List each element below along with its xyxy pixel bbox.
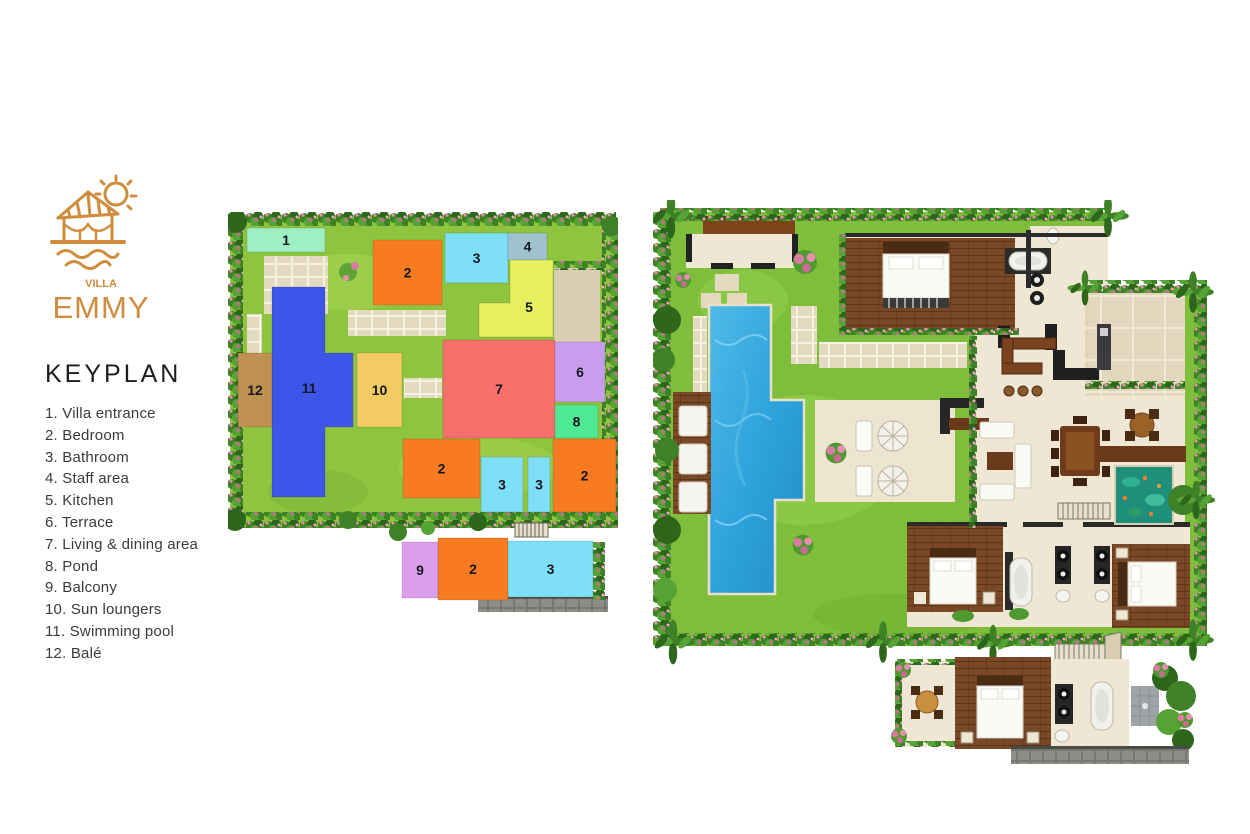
keyplan-block-number: 4 — [524, 239, 532, 255]
legend-item-label: Bathroom — [58, 449, 129, 466]
legend-item-label: Bedroom — [58, 427, 125, 444]
keyplan-block-number: 5 — [525, 299, 533, 315]
keyplan-diagram: 123457682332111012923 — [228, 212, 618, 619]
legend-item: 7. Living & dining area — [45, 534, 230, 556]
sun-lounger — [856, 421, 908, 451]
legend-item-label: Staff area — [58, 470, 129, 487]
brand-villa-label: VILLA — [46, 278, 156, 290]
legend-item: 10. Sun loungers — [45, 599, 230, 621]
legend-item: 4. Staff area — [45, 468, 230, 490]
coffee-table — [987, 452, 1013, 470]
bale-pavilion — [673, 392, 711, 514]
legend-item: 5. Kitchen — [45, 490, 230, 512]
keyplan-block-number: 2 — [438, 461, 446, 477]
legend-item-number: 5. — [45, 492, 58, 509]
outdoor-shower — [1131, 686, 1159, 726]
suite-bedroom — [955, 657, 1051, 749]
legend-item-label: Balé — [66, 645, 101, 662]
master-bedroom — [845, 238, 1015, 331]
keyplan-legend: 1. Villa entrance2. Bedroom3. Bathroom4.… — [45, 403, 230, 665]
hut-icon — [52, 192, 124, 242]
keyplan-block-number: 6 — [576, 364, 584, 380]
legend-item: 12. Balé — [45, 643, 230, 665]
legend-item-number: 2. — [45, 427, 58, 444]
suite-path — [1011, 746, 1189, 764]
legend-item-label: Living & dining area — [58, 536, 198, 553]
legend-item-number: 8. — [45, 558, 58, 575]
legend-item-label: Terrace — [58, 514, 114, 531]
legend-item-number: 9. — [45, 579, 58, 596]
keyplan-block-number: 2 — [469, 561, 477, 577]
legend-item: 2. Bedroom — [45, 425, 230, 447]
bedroom-bottom-right — [1112, 544, 1190, 628]
brand-name: EMMY — [42, 290, 160, 326]
legend-item: 3. Bathroom — [45, 447, 230, 469]
legend-item-number: 3. — [45, 449, 58, 466]
page-title: KEYPLAN — [45, 360, 181, 389]
legend-item-label: Balcony — [58, 579, 117, 596]
legend-item-label: Pond — [58, 558, 98, 575]
legend-item: 8. Pond — [45, 556, 230, 578]
guest-suite — [891, 632, 1196, 764]
legend-item-label: Kitchen — [58, 492, 114, 509]
keyplan-block-number: 2 — [581, 468, 589, 484]
bedroom-bottom-left — [907, 526, 1003, 612]
legend-item: 1. Villa entrance — [45, 403, 230, 425]
legend-item-number: 11. — [45, 623, 65, 640]
keyplan-block-number: 3 — [473, 250, 481, 266]
legend-item-number: 4. — [45, 470, 58, 487]
villa-floorplan — [653, 200, 1238, 785]
legend-item-number: 6. — [45, 514, 58, 531]
legend-item-label: Swimming pool — [65, 623, 174, 640]
legend-item-number: 1. — [45, 405, 58, 422]
keyplan-block-number: 11 — [302, 380, 317, 396]
keyplan-block-number: 1 — [282, 232, 290, 248]
keyplan-block-number: 9 — [416, 562, 424, 578]
legend-item-number: 7. — [45, 536, 58, 553]
waves-icon — [58, 251, 118, 269]
keyplan-block-number: 3 — [547, 561, 555, 577]
keyplan-block-number: 8 — [573, 414, 581, 430]
legend-item-number: 12. — [45, 645, 66, 662]
legend-item: 9. Balcony — [45, 577, 230, 599]
keyplan-block-number: 7 — [495, 381, 503, 397]
sun-lounger — [856, 466, 908, 496]
legend-item-label: Sun loungers — [66, 601, 161, 618]
keyplan-block-number: 10 — [372, 382, 388, 398]
stairs-icon — [515, 523, 548, 537]
legend-item-number: 10. — [45, 601, 66, 618]
legend-item: 11. Swimming pool — [45, 621, 230, 643]
keyplan-terrace-pavers — [554, 268, 600, 344]
keyplan-block-number: 3 — [498, 477, 506, 493]
keyplan-block-number: 12 — [247, 382, 263, 398]
legend-item-label: Villa entrance — [58, 405, 156, 422]
suite-bathroom — [1051, 659, 1129, 749]
legend-item: 6. Terrace — [45, 512, 230, 534]
stairs-middle — [1058, 503, 1110, 519]
keyplan-block-number: 3 — [535, 477, 543, 493]
keyplan-block-number: 2 — [404, 265, 412, 281]
